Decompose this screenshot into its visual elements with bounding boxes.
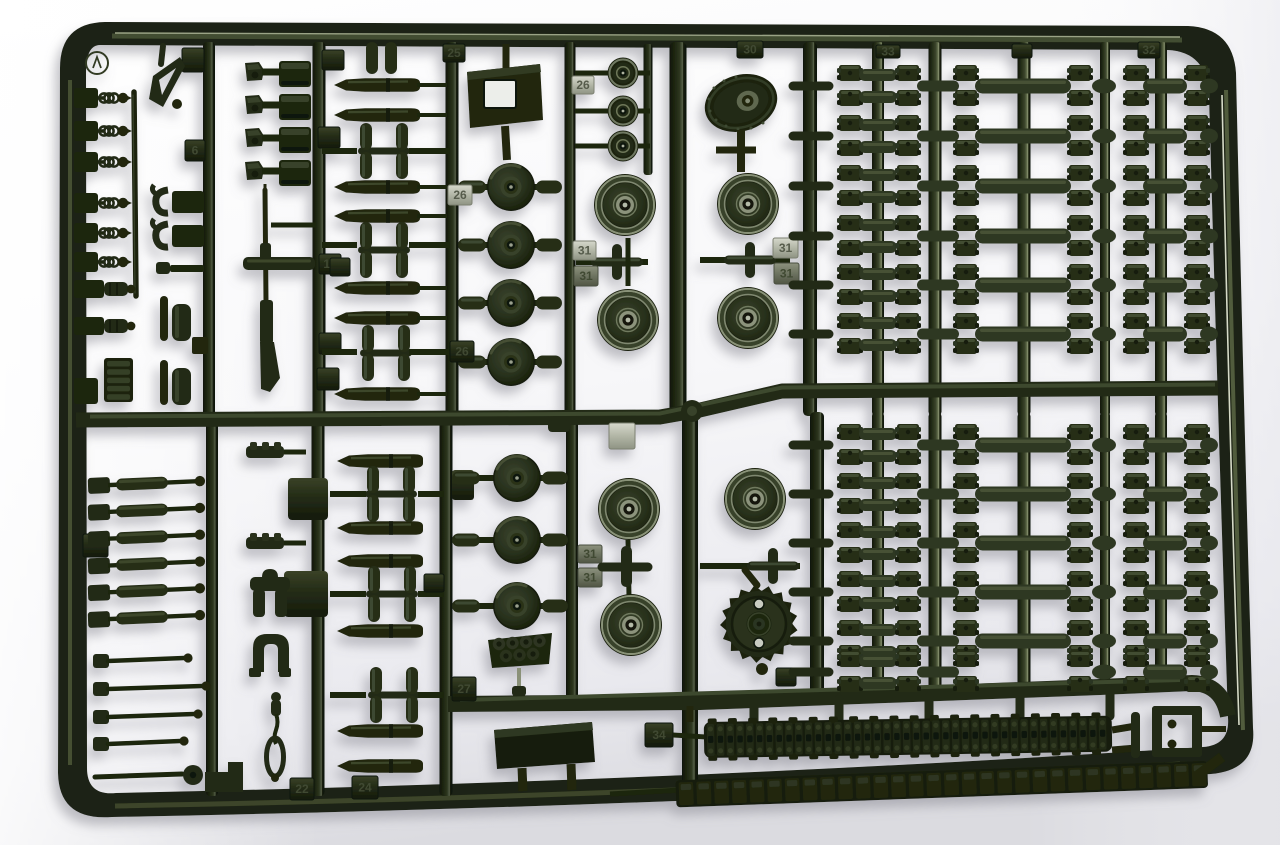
- svg-text:30: 30: [743, 43, 757, 57]
- svg-text:27: 27: [457, 682, 471, 696]
- svg-text:31: 31: [583, 547, 597, 561]
- svg-text:26: 26: [576, 78, 590, 92]
- svg-text:6: 6: [192, 144, 199, 158]
- svg-text:31: 31: [578, 244, 592, 258]
- svg-text:31: 31: [579, 269, 593, 283]
- svg-text:32: 32: [1142, 43, 1156, 57]
- svg-text:22: 22: [295, 782, 309, 796]
- svg-text:31: 31: [583, 571, 597, 585]
- svg-text:24: 24: [358, 781, 372, 795]
- svg-text:26: 26: [453, 188, 467, 202]
- svg-text:25: 25: [447, 46, 461, 60]
- svg-text:31: 31: [780, 267, 794, 281]
- svg-text:31: 31: [779, 241, 793, 255]
- svg-text:34: 34: [652, 728, 666, 742]
- svg-text:33: 33: [881, 45, 895, 59]
- svg-text:26: 26: [455, 345, 469, 359]
